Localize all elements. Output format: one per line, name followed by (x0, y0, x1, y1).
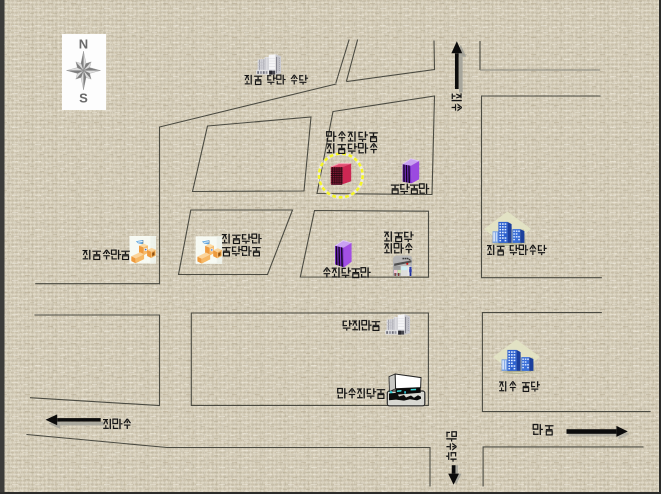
svg-text:N: N (79, 37, 88, 52)
svg-text:S: S (79, 91, 88, 106)
